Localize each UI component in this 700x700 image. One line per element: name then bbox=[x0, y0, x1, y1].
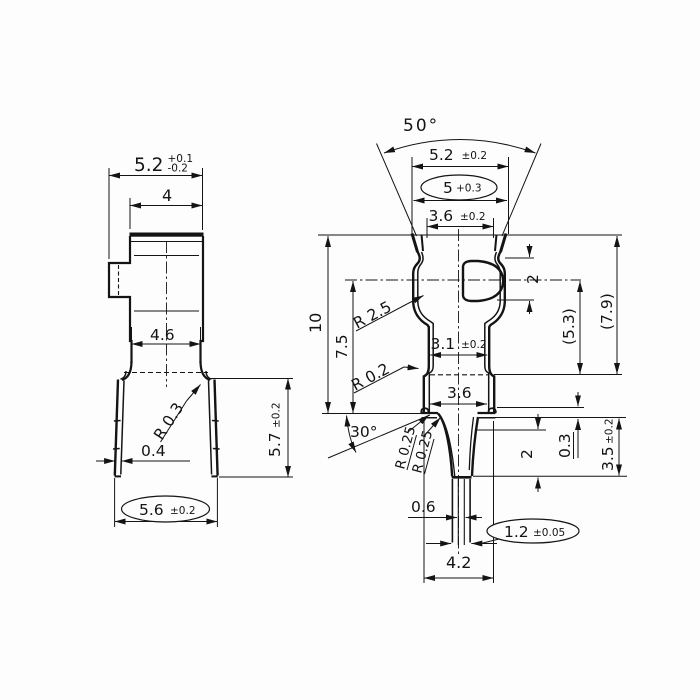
dim-label-tip-gap: 0.6 bbox=[411, 498, 436, 516]
dim-label-width-top-tol-minus: -0.2 bbox=[168, 163, 189, 175]
dim-label-pin-height-tol: ±0.2 bbox=[604, 419, 616, 445]
dim-label-width-oval-tol: +0.3 bbox=[456, 183, 482, 195]
left-view: 5.2 +0.1 -0.2 4 4.6 R 0.3 0.4 5.6 ±0.2 5… bbox=[96, 153, 293, 527]
technical-drawing-sheet: 5.2 +0.1 -0.2 4 4.6 R 0.3 0.4 5.6 ±0.2 5… bbox=[0, 0, 700, 700]
dim-label-waist-width: 3.1 bbox=[431, 335, 456, 353]
left-leg-outer bbox=[115, 380, 118, 476]
crimp-tip-outer-edges bbox=[452, 479, 470, 543]
dim-label-radius-waist: R 0.2 bbox=[348, 360, 392, 395]
dim-label-height-ref-inner: (5.3) bbox=[560, 308, 578, 345]
dim-label-tip-width: 1.2 bbox=[504, 523, 529, 541]
right-view: 50° 5.2 ±0.2 5 +0.3 3.6 ±0.2 R 2.5 2 10 … bbox=[306, 116, 627, 583]
dim-label-height-ref-outer: (7.9) bbox=[598, 293, 616, 330]
right-dimensions bbox=[318, 140, 627, 584]
dim-label-step-height: 0.3 bbox=[556, 433, 574, 458]
right-leg-outer bbox=[215, 380, 218, 476]
dim-label-width-inner: 4 bbox=[162, 186, 172, 205]
dim-label-angle-bottom: 30° bbox=[350, 423, 377, 441]
dim-label-leg-thickness: 0.4 bbox=[141, 442, 166, 460]
dim-label-radius-bend: R 0.3 bbox=[150, 400, 187, 444]
dim-label-pin-height: 3.5 bbox=[599, 446, 617, 471]
dim-label-width-bottom-tol: ±0.2 bbox=[170, 505, 196, 517]
left-dimensions bbox=[96, 168, 293, 527]
dim-label-taper-depth: 2 bbox=[518, 449, 536, 459]
terminal-drawing: 5.2 +0.1 -0.2 4 4.6 R 0.3 0.4 5.6 ±0.2 5… bbox=[0, 0, 700, 700]
dim-label-width-mid: 4.6 bbox=[150, 326, 175, 344]
locking-dimple bbox=[463, 261, 503, 301]
dim-label-leg-width: 3.6 bbox=[447, 384, 472, 402]
dim-label-width-bottom: 5.6 bbox=[139, 501, 164, 519]
dim-label-leg-height: 5.7 bbox=[266, 432, 284, 457]
dim-label-height-total: 10 bbox=[306, 313, 325, 333]
dim-label-leg-height-tol: ±0.2 bbox=[271, 403, 283, 429]
blade-top-fold bbox=[130, 233, 204, 237]
dim-label-angle-top: 50° bbox=[403, 116, 439, 136]
dim-label-width-outer: 5.2 bbox=[429, 146, 454, 164]
dim-label-tip-width-tol: ±0.05 bbox=[533, 527, 565, 539]
dim-label-flange-width: 4.2 bbox=[446, 553, 471, 572]
dim-label-width-outer-tol: ±0.2 bbox=[462, 150, 488, 162]
dim-label-radius-shoulder: R 2.5 bbox=[350, 298, 394, 333]
dim-label-width-inner-top: 3.6 bbox=[429, 207, 454, 225]
dim-label-width-top: 5.2 bbox=[134, 155, 163, 176]
dim-label-height-upper: 7.5 bbox=[333, 334, 351, 359]
dim-label-dimple-height: 2 bbox=[524, 274, 542, 284]
dim-label-waist-width-tol: ±0.2 bbox=[461, 339, 487, 351]
inspection-oval-5-6 bbox=[122, 496, 210, 522]
dim-label-width-inner-top-tol: ±0.2 bbox=[460, 211, 486, 223]
crimp-tip-inner-edges bbox=[458, 479, 464, 545]
dim-label-width-oval: 5 bbox=[443, 179, 453, 197]
